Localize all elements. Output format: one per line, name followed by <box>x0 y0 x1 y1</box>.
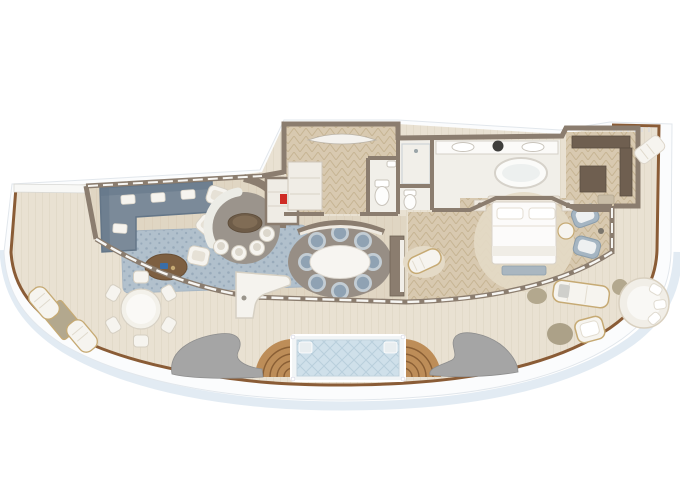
forward-railing <box>14 184 88 193</box>
sink <box>452 143 474 152</box>
side-table <box>558 223 574 239</box>
nook-table <box>228 214 262 233</box>
chaise-longue <box>403 246 445 278</box>
round-daybed <box>619 278 669 328</box>
king-bed <box>488 196 560 275</box>
plunge-pool <box>291 335 405 381</box>
toilet-bowl <box>375 187 389 206</box>
suite-floorplan-page <box>0 0 680 486</box>
double-vanity <box>436 141 558 155</box>
sink <box>522 143 544 152</box>
pool-bench <box>299 342 312 353</box>
ottoman-pouf <box>547 323 573 345</box>
minibar-red-item <box>280 194 287 204</box>
bed-bench <box>502 266 546 275</box>
toilet-tank <box>375 180 389 187</box>
water-closet <box>404 190 416 210</box>
bathtub <box>495 158 547 188</box>
foyer-closet <box>288 162 322 210</box>
powder-sink <box>387 161 396 167</box>
armchair <box>186 245 210 267</box>
vanity-bowl <box>493 141 504 152</box>
suite-floorplan-rendering <box>0 0 680 486</box>
dining-cabinet <box>390 236 404 296</box>
pool-bench <box>384 342 397 353</box>
wardrobe <box>572 136 630 148</box>
ottoman-pouf <box>527 288 547 304</box>
dressing-bench <box>598 195 614 204</box>
dining-table <box>310 246 370 279</box>
wardrobe <box>620 148 632 196</box>
floor-lamp <box>598 228 604 234</box>
closet-island <box>580 166 606 192</box>
